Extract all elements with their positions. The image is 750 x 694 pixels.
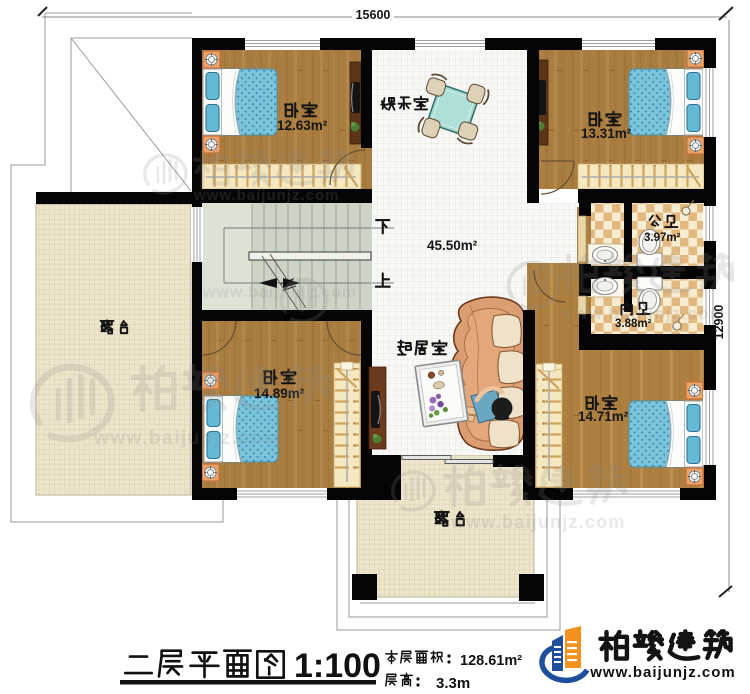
svg-text:www.baijunjz.com: www.baijunjz.com xyxy=(93,428,282,449)
svg-text:www.baijunjz.com: www.baijunjz.com xyxy=(559,304,726,323)
svg-text:www.baijunjz.com: www.baijunjz.com xyxy=(589,664,735,681)
svg-text:13.31m²: 13.31m² xyxy=(581,126,632,141)
svg-text:www.baijunjz.com: www.baijunjz.com xyxy=(202,284,357,301)
svg-text:14.71m²: 14.71m² xyxy=(578,409,629,424)
svg-text:www.baijunjz.com: www.baijunjz.com xyxy=(193,187,339,204)
svg-text:12.63m²: 12.63m² xyxy=(277,118,328,133)
svg-text:128.61m²: 128.61m² xyxy=(460,653,522,669)
svg-text:www.baijunjz.com: www.baijunjz.com xyxy=(450,512,626,532)
svg-text:45.50m²: 45.50m² xyxy=(427,238,478,253)
svg-text:3.3m: 3.3m xyxy=(436,675,470,692)
svg-text:1:100: 1:100 xyxy=(294,647,381,685)
svg-text:3.97m²: 3.97m² xyxy=(644,232,681,244)
svg-text:15600: 15600 xyxy=(356,8,391,22)
